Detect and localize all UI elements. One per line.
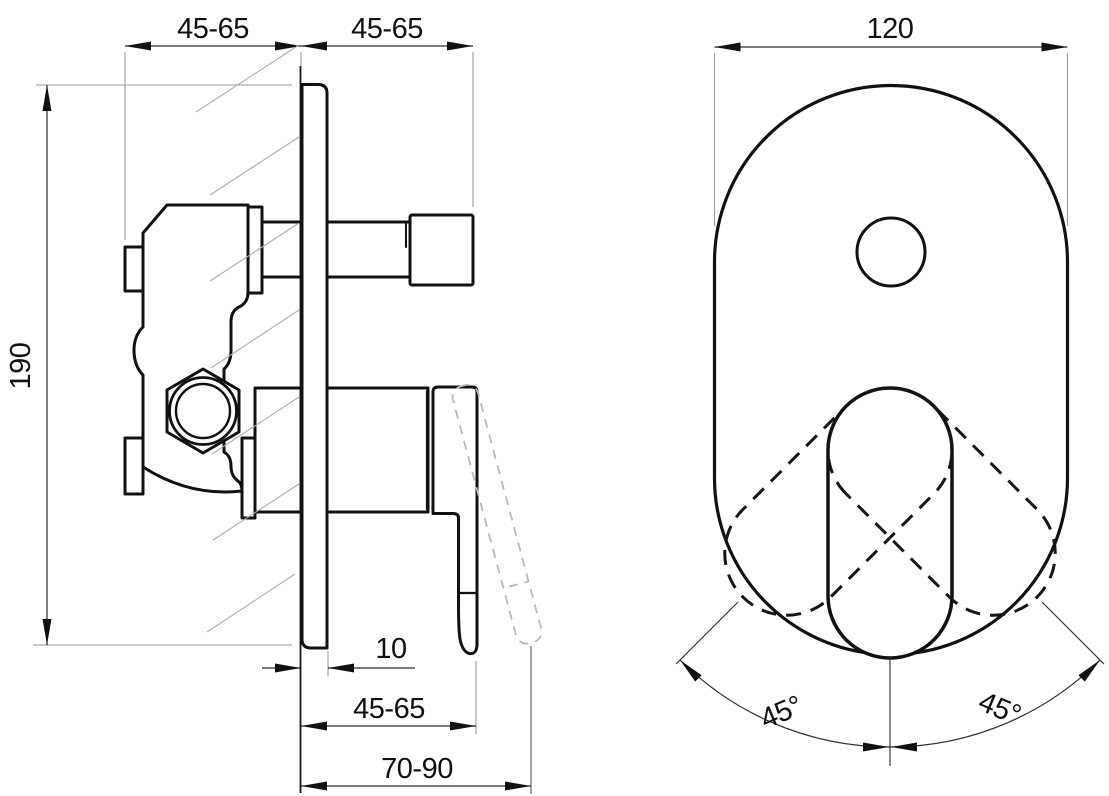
dim-angle-right-label: 45°: [974, 686, 1025, 732]
dim-height-label: 190: [5, 343, 37, 390]
dim-top-right-label: 45-65: [351, 13, 423, 45]
side-view: 45-65 45-65 190 10 45-65 70-90: [5, 13, 544, 794]
mixer-installation-drawing: 45-65 45-65 190 10 45-65 70-90: [0, 0, 1109, 796]
upper-pipe-behind-wall: [262, 222, 301, 277]
mounting-flange-top: [125, 247, 143, 291]
dim-top-left-label: 45-65: [177, 13, 249, 45]
cover-plate-side: [302, 85, 327, 649]
lower-cartridge-front: [327, 388, 428, 512]
upper-pipe-front: [327, 222, 410, 277]
valve-body-group: [125, 205, 262, 518]
dim-depth-max-label: 70-90: [381, 753, 453, 785]
pipes-group: [255, 215, 544, 654]
technical-drawing-page: 45-65 45-65 190 10 45-65 70-90: [0, 0, 1109, 796]
dim-width-label: 120: [867, 13, 914, 45]
front-view: 120 45° 45°: [676, 13, 1104, 766]
mounting-flange-bottom: [125, 438, 143, 494]
dim-depth-min-label: 45-65: [353, 693, 425, 725]
handle-front: [828, 388, 952, 658]
dim-plate-thickness-label: 10: [375, 633, 406, 665]
cartridge-collar-bottom: [242, 438, 255, 518]
diverter-knob-side: [410, 215, 473, 285]
dim-angle-left-label: 45°: [756, 690, 807, 736]
cartridge-collar-top: [248, 207, 262, 293]
valve-body: [134, 205, 248, 492]
handle-lever-side: [433, 387, 477, 654]
lower-cartridge-behind-wall: [255, 388, 301, 512]
